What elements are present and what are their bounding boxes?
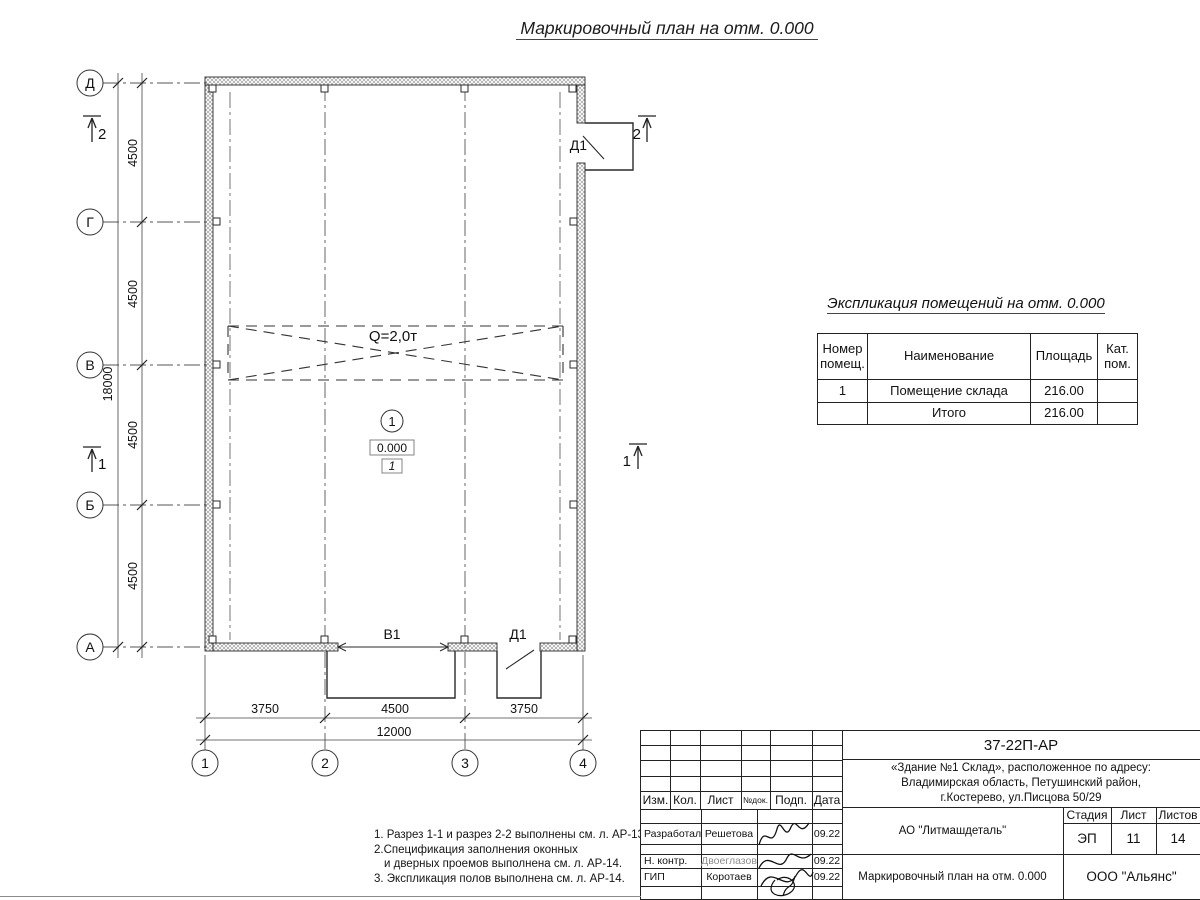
total-label-cell: Итого: [868, 403, 1031, 425]
divider: [641, 745, 842, 746]
stamp-drawing-title: Маркировочный план на отм. 0.000: [842, 854, 1063, 899]
note-line: 1. Разрез 1-1 и разрез 2-2 выполнены см.…: [374, 828, 647, 843]
stamp-col-ndok: №док.: [741, 791, 770, 809]
divider: [641, 776, 842, 777]
divider: [641, 760, 842, 761]
stamp-date-ncontrol: 09.22: [812, 854, 842, 868]
stamp-doc-number: 37-22П-АР: [842, 731, 1200, 759]
door-swing-bottom: [506, 650, 534, 669]
axis-bubbles: [77, 70, 596, 776]
empty-cell: [1098, 403, 1138, 425]
sheet-frame-line: [0, 896, 641, 897]
signature-ncontrol-gip: [753, 846, 815, 899]
explication-title-text: Экспликация помещений на отм. 0.000: [827, 295, 1104, 314]
openings: [327, 123, 633, 698]
axis-col-1: 1: [201, 755, 209, 771]
dim-v-total: 18000: [101, 367, 115, 402]
section-2-right: 2: [633, 126, 641, 143]
stamp-name-developer: Решетова: [701, 823, 757, 844]
crane-capacity-label: Q=2,0т: [369, 328, 417, 345]
door-label-bottom: Д1: [509, 626, 526, 642]
room-number: 1: [388, 414, 395, 429]
gate-ramp: [327, 651, 455, 698]
section-1-left: 1: [98, 456, 106, 473]
stamp-sheets-value: 14: [1156, 823, 1200, 854]
explication-title: Экспликация помещений на отм. 0.000: [817, 295, 1115, 313]
dimension-lines: [118, 73, 592, 750]
title-block: Изм. Кол. Лист №док. Подп. Дата Разработ…: [640, 730, 1200, 900]
stamp-sheet-value: 11: [1111, 823, 1156, 854]
door-label-top: Д1: [570, 137, 587, 153]
axis-row-g: Г: [86, 214, 94, 230]
dim-h-3: 3750: [510, 702, 538, 716]
dim-h-2: 4500: [381, 702, 409, 716]
floor-type-mark: 1: [389, 459, 396, 473]
stamp-col-izm: Изм.: [641, 791, 670, 809]
total-area-cell: 216.00: [1031, 403, 1098, 425]
axis-col-4: 4: [579, 755, 587, 771]
section-2-left: 2: [98, 126, 106, 143]
axis-row-b: Б: [85, 497, 94, 513]
note-line: 3. Экспликация полов выполнена см. л. АР…: [374, 872, 647, 887]
empty-cell: [818, 403, 868, 425]
room-area-cell: 216.00: [1031, 380, 1098, 403]
dim-v-4: 4500: [126, 562, 140, 590]
dim-v-2: 4500: [126, 280, 140, 308]
divider: [641, 809, 842, 810]
room-name-cell: Помещение склада: [868, 380, 1031, 403]
description-line: «Здание №1 Склад», расположенное по адре…: [891, 761, 1151, 776]
description-line: Владимирская область, Петушинский район,: [901, 776, 1141, 791]
stamp-date-developer: 09.22: [812, 823, 842, 844]
dim-v-3: 4500: [126, 421, 140, 449]
page-title-text: Маркировочный план на отм. 0.000: [516, 18, 817, 40]
stamp-col-list: Лист: [700, 791, 741, 809]
stamp-role-ncontrol: Н. контр.: [641, 854, 704, 868]
dim-h-1: 3750: [251, 702, 279, 716]
stamp-name-ncontrol: Двоеглазов: [701, 854, 757, 868]
axis-col-3: 3: [461, 755, 469, 771]
walls: [205, 77, 585, 651]
stamp-sheets-label: Листов: [1156, 807, 1200, 823]
vestibule-bottom: [497, 651, 541, 698]
axis-bubble-labels: Д Г В Б А 1 2 3 4: [85, 75, 587, 771]
table-total-row: Итого 216.00: [818, 403, 1138, 425]
drawing-sheet: Q=2,0т 1 0.000 1 Д1 В1 Д1 4500 4500 4500…: [0, 0, 1200, 900]
axis-col-2: 2: [321, 755, 329, 771]
stamp-role-gip: ГИП: [641, 868, 704, 886]
stamp-sheet-label: Лист: [1111, 807, 1156, 823]
note-line: 2.Спецификация заполнения оконных: [374, 843, 647, 858]
room-marker: 1 0.000 1: [370, 410, 414, 473]
stamp-role-developer: Разработал: [641, 823, 704, 844]
note-line: и дверных проемов выполнена см. л. АР-14…: [384, 857, 647, 872]
axis-row-d: Д: [85, 75, 95, 91]
page-title: Маркировочный план на отм. 0.000: [447, 18, 887, 39]
description-line: г.Костерево, ул.Писцова 50/29: [941, 791, 1102, 806]
notes: 1. Разрез 1-1 и разрез 2-2 выполнены см.…: [374, 828, 647, 886]
level-mark: 0.000: [377, 441, 407, 455]
axis-row-v: В: [85, 357, 94, 373]
column-marks: [209, 85, 577, 643]
stamp-project-description: «Здание №1 Склад», расположенное по адре…: [842, 759, 1200, 807]
dim-v-1: 4500: [126, 139, 140, 167]
table-row: 1 Помещение склада 216.00: [818, 380, 1138, 403]
stamp-col-data: Дата: [812, 791, 842, 809]
section-markers: [83, 116, 656, 472]
stamp-col-kol: Кол.: [670, 791, 700, 809]
section-1-right: 1: [623, 453, 631, 470]
dimension-ticks: [113, 78, 588, 745]
stamp-stage-value: ЭП: [1063, 823, 1111, 854]
dim-h-total: 12000: [377, 725, 412, 739]
stamp-company: АО "Литмашдеталь": [842, 807, 1063, 854]
stamp-stage-label: Стадия: [1063, 807, 1111, 823]
col-header-category: Кат. пом.: [1098, 334, 1138, 380]
col-header-name: Наименование: [868, 334, 1031, 380]
stamp-date-gip: 09.22: [812, 868, 842, 886]
room-number-cell: 1: [818, 380, 868, 403]
stamp-name-gip: Коротаев: [701, 868, 757, 886]
explication-table: Номер помещ. Наименование Площадь Кат. п…: [817, 333, 1138, 425]
col-header-room-number: Номер помещ.: [818, 334, 868, 380]
col-header-area: Площадь: [1031, 334, 1098, 380]
axis-row-a: А: [85, 639, 95, 655]
crane-runway-axes: [230, 92, 560, 640]
stamp-contractor: ООО "Альянс": [1063, 854, 1200, 899]
gate-label: В1: [383, 626, 400, 642]
explication-header-row: Номер помещ. Наименование Площадь Кат. п…: [818, 334, 1138, 380]
stamp-col-podp: Подп.: [770, 791, 812, 809]
room-category-cell: [1098, 380, 1138, 403]
